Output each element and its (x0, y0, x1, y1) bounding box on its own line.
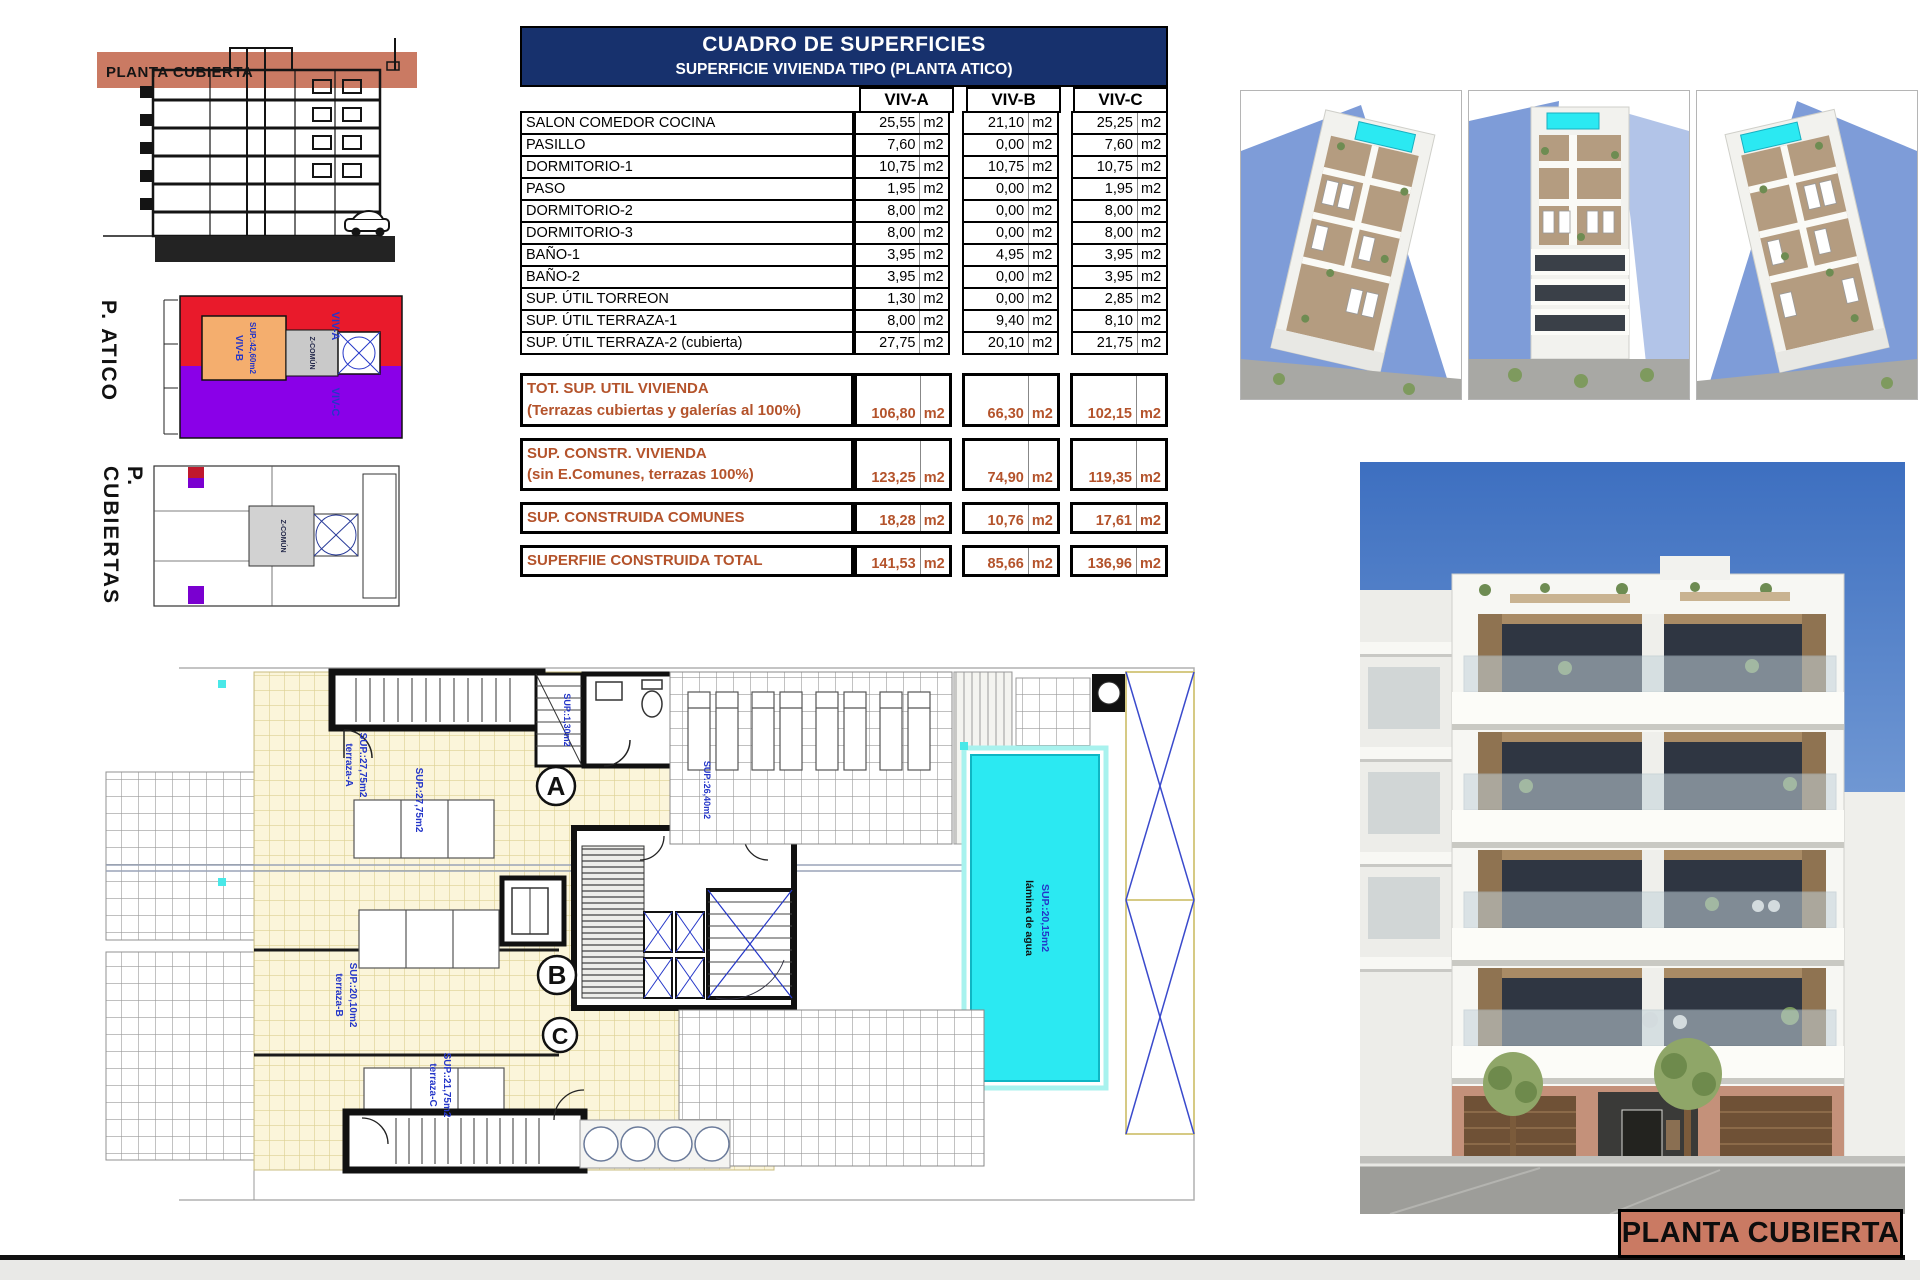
atico-dimension-brackets (164, 300, 178, 434)
total-value: 66,30m2 (962, 373, 1060, 427)
total-value: 85,66m2 (962, 545, 1060, 577)
surface-table: CUADRO DE SUPERFICIES SUPERFICIE VIVIEND… (520, 26, 1168, 577)
row-value-unit: m2 (919, 179, 948, 199)
aerial-render-right (1696, 90, 1918, 400)
row-value: 21,10m2 (962, 111, 1059, 135)
cubiertas-right-zone (363, 474, 396, 598)
unit-letter-c: C (552, 1023, 569, 1049)
total-value-number: 17,61 (1073, 505, 1136, 531)
row-value: 3,95m2 (1071, 265, 1168, 289)
total-label-main: SUPERFIIE CONSTRUIDA TOTAL (527, 550, 851, 572)
row-label: BAÑO-1 (520, 243, 854, 267)
round-tables (580, 1120, 730, 1168)
row-value-number: 25,25 (1073, 113, 1137, 133)
row-value-number: 9,40 (964, 311, 1028, 331)
total-label: SUP. CONSTRUIDA COMUNES (520, 502, 854, 534)
total-value: 106,80m2 (854, 373, 952, 427)
total-value-number: 10,76 (965, 505, 1028, 531)
sheet-title-block: PLANTA CUBIERTA (1618, 1209, 1903, 1258)
row-value-unit: m2 (1028, 113, 1057, 133)
total-sublabel: (sin E.Comunes, terrazas 100%) (527, 464, 851, 486)
total-value-unit: m2 (920, 505, 949, 531)
terraza-c-name: terraza-C (427, 1063, 438, 1106)
row-label: BAÑO-2 (520, 265, 854, 289)
total-value-number: 136,96 (1073, 548, 1136, 574)
row-value-number: 8,00 (856, 223, 920, 243)
row-value-unit: m2 (1137, 113, 1166, 133)
sheet-title-text: PLANTA CUBIERTA (1622, 1217, 1900, 1250)
row-value: 8,00m2 (1071, 221, 1168, 245)
row-label: SALON COMEDOR COCINA (520, 111, 854, 135)
street (1360, 1156, 1905, 1214)
atico-viv-c-text: VIV-C (329, 388, 341, 417)
pool-name-label: lámina de agua (1023, 880, 1035, 956)
row-value-unit: m2 (1028, 311, 1057, 331)
total-value-number: 85,66 (965, 548, 1028, 574)
table-column-header-row: VIV-A VIV-B VIV-C (520, 87, 1168, 113)
row-value: 20,10m2 (962, 331, 1059, 355)
total-label-main: SUP. CONSTRUIDA COMUNES (527, 507, 851, 529)
row-value-unit: m2 (919, 245, 948, 265)
row-value-unit: m2 (1137, 245, 1166, 265)
total-value-number: 119,35 (1073, 441, 1136, 489)
terraza-a-name: terraza-A (343, 743, 354, 786)
total-value-number: 66,30 (965, 376, 1028, 424)
row-value: 4,95m2 (962, 243, 1059, 267)
row-value-unit: m2 (1028, 157, 1057, 177)
row-value-number: 4,95 (964, 245, 1028, 265)
cubiertas-stair-core (314, 514, 358, 556)
atico-stair-core (338, 332, 380, 374)
row-label: SUP. ÚTIL TERRAZA-1 (520, 309, 854, 333)
total-value: 17,61m2 (1070, 502, 1168, 534)
row-value-unit: m2 (1028, 201, 1057, 221)
row-value-number: 1,95 (1073, 179, 1137, 199)
table-total-row: SUPERFIIE CONSTRUIDA TOTAL141,53m285,66m… (520, 545, 1168, 577)
atico-viv-b-text: VIV-B (233, 335, 244, 361)
row-value-unit: m2 (919, 201, 948, 221)
row-value-unit: m2 (1137, 179, 1166, 199)
table-row: SUP. ÚTIL TERRAZA-18,00m29,40m28,10m2 (520, 309, 1168, 333)
total-label: SUPERFIIE CONSTRUIDA TOTAL (520, 545, 854, 577)
row-value-number: 10,75 (1073, 157, 1137, 177)
row-value: 1,95m2 (854, 177, 951, 201)
row-value: 8,10m2 (1071, 309, 1168, 333)
row-value-unit: m2 (1137, 333, 1166, 353)
row-label: DORMITORIO-3 (520, 221, 854, 245)
row-value-number: 8,00 (1073, 223, 1137, 243)
row-value-number: 8,10 (1073, 311, 1137, 331)
row-value-number: 2,85 (1073, 289, 1137, 309)
total-value-unit: m2 (1136, 505, 1165, 531)
total-value-unit: m2 (920, 548, 949, 574)
row-value-unit: m2 (1028, 135, 1057, 155)
table-row: DORMITORIO-110,75m210,75m210,75m2 (520, 155, 1168, 179)
row-value: 21,75m2 (1071, 331, 1168, 355)
total-label-main: TOT. SUP. UTIL VIVIENDA (527, 378, 851, 400)
pool: lámina de agua SUP.:20,15m2 (964, 748, 1106, 1088)
row-value-unit: m2 (919, 311, 948, 331)
row-value-number: 0,00 (964, 179, 1028, 199)
row-value-number: 8,00 (856, 201, 920, 221)
row-value: 10,75m2 (962, 155, 1059, 179)
total-value: 74,90m2 (962, 438, 1060, 492)
left-terrace-lower (106, 952, 254, 1160)
total-value-number: 74,90 (965, 441, 1028, 489)
row-value: 10,75m2 (854, 155, 951, 179)
total-value: 123,25m2 (854, 438, 952, 492)
row-value-number: 0,00 (964, 267, 1028, 287)
total-value-number: 106,80 (857, 376, 920, 424)
row-value-unit: m2 (919, 135, 948, 155)
row-value-unit: m2 (1137, 223, 1166, 243)
cubiertas-zcomun-text: Z-COMÚN (279, 519, 288, 552)
row-value: 0,00m2 (962, 265, 1059, 289)
column-header-viv-b: VIV-B (966, 87, 1061, 113)
total-label: TOT. SUP. UTIL VIVIENDA(Terrazas cubiert… (520, 373, 854, 427)
building-section-drawing: PLANTA CUBIERTA (95, 22, 425, 267)
pool-sup-label: SUP.:20,15m2 (1039, 884, 1051, 952)
aerial-render-strip (1240, 90, 1918, 400)
row-value-unit: m2 (1137, 157, 1166, 177)
row-value: 3,95m2 (854, 243, 951, 267)
table-row: DORMITORIO-38,00m20,00m28,00m2 (520, 221, 1168, 245)
table-body-rows: SALON COMEDOR COCINA25,55m221,10m225,25m… (520, 111, 1168, 355)
row-value-unit: m2 (919, 333, 948, 353)
total-value-unit: m2 (920, 376, 949, 424)
total-value: 119,35m2 (1070, 438, 1168, 492)
core-ramp (582, 846, 644, 998)
table-title: CUADRO DE SUPERFICIES (522, 33, 1166, 57)
row-label: SUP. ÚTIL TERRAZA-2 (cubierta) (520, 331, 854, 355)
row-value-unit: m2 (919, 157, 948, 177)
total-value-unit: m2 (1136, 441, 1165, 489)
section-banner-label: PLANTA CUBIERTA (106, 64, 253, 81)
row-value: 27,75m2 (854, 331, 951, 355)
elevator (502, 878, 564, 944)
row-value-number: 0,00 (964, 289, 1028, 309)
row-value-number: 21,10 (964, 113, 1028, 133)
aerial-render-center (1468, 90, 1690, 400)
car-icon (345, 211, 389, 237)
row-value-unit: m2 (919, 223, 948, 243)
total-value-unit: m2 (1136, 548, 1165, 574)
row-value-unit: m2 (919, 113, 948, 133)
total-value-number: 18,28 (857, 505, 920, 531)
total-value-number: 102,15 (1073, 376, 1136, 424)
surface-table-header: CUADRO DE SUPERFICIES SUPERFICIE VIVIEND… (520, 26, 1168, 87)
rooftop-bathroom (584, 674, 676, 766)
core-stair (708, 890, 792, 999)
torreon-stair: SUP.:1,30m2 (536, 674, 582, 766)
total-value: 141,53m2 (854, 545, 952, 577)
row-value: 10,75m2 (1071, 155, 1168, 179)
skylight (1092, 674, 1126, 712)
facade-render (1360, 462, 1905, 1214)
row-value-number: 3,95 (856, 245, 920, 265)
total-value-unit: m2 (920, 441, 949, 489)
row-value-number: 21,75 (1073, 333, 1137, 353)
row-value-number: 0,00 (964, 223, 1028, 243)
row-value-number: 8,00 (1073, 201, 1137, 221)
row-value-number: 8,00 (856, 311, 920, 331)
right-neighbour-building (1844, 792, 1905, 1166)
cubiertas-plan-label: P. CUBIERTAS (98, 466, 146, 626)
table-total-row: SUP. CONSTRUIDA COMUNES18,28m210,76m217,… (520, 502, 1168, 534)
total-label: SUP. CONSTR. VIVIENDA(sin E.Comunes, ter… (520, 438, 854, 492)
row-value-number: 1,30 (856, 289, 920, 309)
cubiertas-line-plan: Z-COMÚN (150, 460, 404, 612)
row-value: 0,00m2 (962, 199, 1059, 223)
table-total-row: SUP. CONSTR. VIVIENDA(sin E.Comunes, ter… (520, 438, 1168, 492)
row-value-number: 20,10 (964, 333, 1028, 353)
row-value-number: 10,75 (964, 157, 1028, 177)
unit-letter-b: B (548, 960, 567, 990)
total-value: 102,15m2 (1070, 373, 1168, 427)
row-value: 3,95m2 (854, 265, 951, 289)
table-row: PASILLO7,60m20,00m27,60m2 (520, 133, 1168, 157)
row-value-unit: m2 (1137, 267, 1166, 287)
row-value: 25,25m2 (1071, 111, 1168, 135)
row-label: SUP. ÚTIL TORREON (520, 287, 854, 311)
atico-viv-a-text: VIV-A (329, 312, 341, 341)
atico-plan-label: P. ATICO (96, 300, 120, 440)
column-header-viv-a: VIV-A (859, 87, 954, 113)
row-value: 3,95m2 (1071, 243, 1168, 267)
row-value-unit: m2 (1028, 223, 1057, 243)
column-header-viv-c: VIV-C (1073, 87, 1168, 113)
table-row: BAÑO-23,95m20,00m23,95m2 (520, 265, 1168, 289)
row-value-number: 25,55 (856, 113, 920, 133)
total-value-unit: m2 (1028, 548, 1057, 574)
column-header-spacer (520, 87, 847, 113)
table-total-rows: TOT. SUP. UTIL VIVIENDA(Terrazas cubiert… (520, 355, 1168, 577)
total-value: 18,28m2 (854, 502, 952, 534)
row-value-unit: m2 (1137, 289, 1166, 309)
excluded-zone (1126, 672, 1194, 1134)
table-row: SALON COMEDOR COCINA25,55m221,10m225,25m… (520, 111, 1168, 135)
table-row: DORMITORIO-28,00m20,00m28,00m2 (520, 199, 1168, 223)
row-label: PASILLO (520, 133, 854, 157)
terraza-a-sup-2: SUP.:27,75m2 (413, 768, 424, 833)
table-subtitle: SUPERFICIE VIVIENDA TIPO (PLANTA ATICO) (522, 61, 1166, 79)
row-value-number: 7,60 (856, 135, 920, 155)
aerial-render-left (1240, 90, 1462, 400)
row-value: 2,85m2 (1071, 287, 1168, 311)
unit-letter-a: A (547, 771, 566, 801)
total-value-unit: m2 (1028, 376, 1057, 424)
row-value-number: 0,00 (964, 201, 1028, 221)
table-row: BAÑO-13,95m24,95m23,95m2 (520, 243, 1168, 267)
row-value: 0,00m2 (962, 287, 1059, 311)
torreon-sup-label: SUP.:1,30m2 (562, 693, 572, 746)
row-value-number: 1,95 (856, 179, 920, 199)
row-value: 7,60m2 (1071, 133, 1168, 157)
section-basement (155, 236, 395, 262)
atico-zcomun-text: Z-COMÚN (308, 336, 317, 369)
total-value-number: 123,25 (857, 441, 920, 489)
terraza-c-sup: SUP.:21,75m2 (441, 1053, 452, 1118)
section-balconies (140, 86, 153, 210)
row-value-number: 3,95 (856, 267, 920, 287)
row-value: 0,00m2 (962, 133, 1059, 157)
table-row: PASO1,95m20,00m21,95m2 (520, 177, 1168, 201)
row-value-unit: m2 (1137, 311, 1166, 331)
left-terrace-upper (106, 772, 254, 940)
table-total-row: TOT. SUP. UTIL VIVIENDA(Terrazas cubiert… (520, 373, 1168, 427)
table-gap (520, 355, 1168, 375)
row-label: PASO (520, 177, 854, 201)
total-sublabel: (Terrazas cubiertas y galerías al 100%) (527, 400, 851, 422)
row-value: 7,60m2 (854, 133, 951, 157)
terraza-b-sup: SUP.:20,10m2 (347, 963, 358, 1028)
row-value: 8,00m2 (854, 199, 951, 223)
total-label-main: SUP. CONSTR. VIVIENDA (527, 443, 851, 465)
total-value-unit: m2 (1028, 505, 1057, 531)
row-value-number: 3,95 (1073, 267, 1137, 287)
row-value-unit: m2 (1028, 289, 1057, 309)
row-label: DORMITORIO-2 (520, 199, 854, 223)
left-neighbour-building (1360, 590, 1458, 1162)
roof-floor-plan: SUP.:1,30m2 (104, 660, 1199, 1212)
row-value-unit: m2 (1028, 179, 1057, 199)
table-row: SUP. ÚTIL TERRAZA-2 (cubierta)27,75m220,… (520, 331, 1168, 355)
row-value: 1,30m2 (854, 287, 951, 311)
atico-color-plan: VIV-A VIV-B SUP.:42,60m2 Z-COMÚN VIV-C (150, 292, 408, 442)
total-value-number: 141,53 (857, 548, 920, 574)
total-value-unit: m2 (1028, 441, 1057, 489)
row-value: 9,40m2 (962, 309, 1059, 333)
row-value-number: 7,60 (1073, 135, 1137, 155)
terraza-b-name: terraza-B (333, 973, 344, 1016)
row-value: 8,00m2 (854, 309, 951, 333)
row-value: 0,00m2 (962, 177, 1059, 201)
row-value: 8,00m2 (854, 221, 951, 245)
terraza-a-sup: SUP.:27,75m2 (357, 733, 368, 798)
row-value-unit: m2 (1137, 201, 1166, 221)
row-value-unit: m2 (1137, 135, 1166, 155)
row-value: 8,00m2 (1071, 199, 1168, 223)
total-value: 10,76m2 (962, 502, 1060, 534)
sheet-bottom-margin (0, 1260, 1920, 1280)
row-value-number: 27,75 (856, 333, 920, 353)
row-value-unit: m2 (1028, 245, 1057, 265)
plan-sheet: PLANTA CUBIERTA (0, 0, 1920, 1280)
solarium-sup-label: SUP.:26,40m2 (702, 761, 712, 819)
row-value-number: 3,95 (1073, 245, 1137, 265)
total-value-unit: m2 (1136, 376, 1165, 424)
corner-tile-patch (1016, 678, 1090, 746)
row-value-unit: m2 (1028, 267, 1057, 287)
row-value-unit: m2 (919, 267, 948, 287)
row-value: 0,00m2 (962, 221, 1059, 245)
row-value-unit: m2 (1028, 333, 1057, 353)
row-value-number: 0,00 (964, 135, 1028, 155)
row-value-number: 10,75 (856, 157, 920, 177)
row-label: DORMITORIO-1 (520, 155, 854, 179)
table-row: SUP. ÚTIL TORREON1,30m20,00m22,85m2 (520, 287, 1168, 311)
total-value: 136,96m2 (1070, 545, 1168, 577)
row-value: 25,55m2 (854, 111, 951, 135)
row-value: 1,95m2 (1071, 177, 1168, 201)
row-value-unit: m2 (919, 289, 948, 309)
atico-viv-b-sup-text: SUP.:42,60m2 (248, 322, 257, 374)
